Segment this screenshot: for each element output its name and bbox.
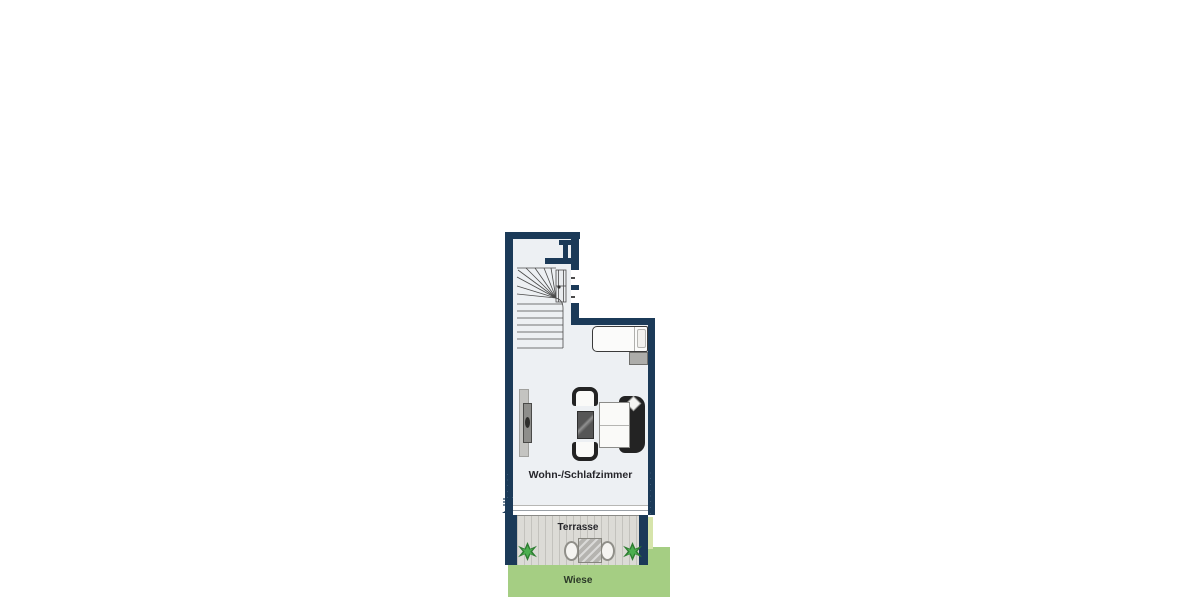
entrance-door-leaf <box>563 244 568 259</box>
lawn-label: Wiese <box>508 576 648 586</box>
shrub-plant-icon-left <box>518 542 537 561</box>
lawn-area-right <box>648 547 670 597</box>
tv-icon <box>523 403 532 443</box>
wall-stairwell-right-a <box>571 239 579 270</box>
terrace-label: Terrasse <box>517 523 639 533</box>
winder-staircase-icon <box>513 264 571 354</box>
wall-room-top <box>571 318 655 325</box>
wall-terrace-left <box>505 515 517 565</box>
bed-pillow <box>637 329 646 348</box>
terrace-chair-icon-right <box>600 541 615 561</box>
nightstand-icon <box>629 352 648 365</box>
window-tick <box>571 277 575 279</box>
tv-foot <box>525 417 530 428</box>
terrace-table-icon <box>578 538 602 563</box>
armchair-icon-bottom <box>572 442 598 461</box>
right-wall-watermark: · · · · · · · · <box>649 470 654 514</box>
wall-top <box>505 232 580 239</box>
coffee-table-icon <box>577 411 594 439</box>
lawn-strip <box>648 517 653 549</box>
stairwell-window-upper <box>571 270 579 285</box>
section-mark-icon <box>501 497 514 514</box>
window-pane-line <box>513 510 648 511</box>
bed-icon <box>592 326 648 352</box>
window-tick <box>571 296 575 298</box>
sofa-icon <box>599 402 630 448</box>
terrace-chair-icon-left <box>564 541 579 561</box>
window-front <box>513 505 648 515</box>
armchair-icon-top <box>572 387 598 406</box>
sofa-seat-divider <box>600 425 629 426</box>
living-room-label: Wohn-/Schlafzimmer <box>513 470 648 481</box>
bed-divider <box>634 327 635 351</box>
wall-stairwell-right-c <box>571 303 579 318</box>
left-wall-watermark: · · · · · · <box>506 468 515 498</box>
shrub-plant-icon-right <box>623 542 642 561</box>
stairwell-window-lower <box>571 290 579 303</box>
floorplan-canvas: Wohn-/Schlafzimmer Terrasse Wiese · · · … <box>0 0 1200 600</box>
